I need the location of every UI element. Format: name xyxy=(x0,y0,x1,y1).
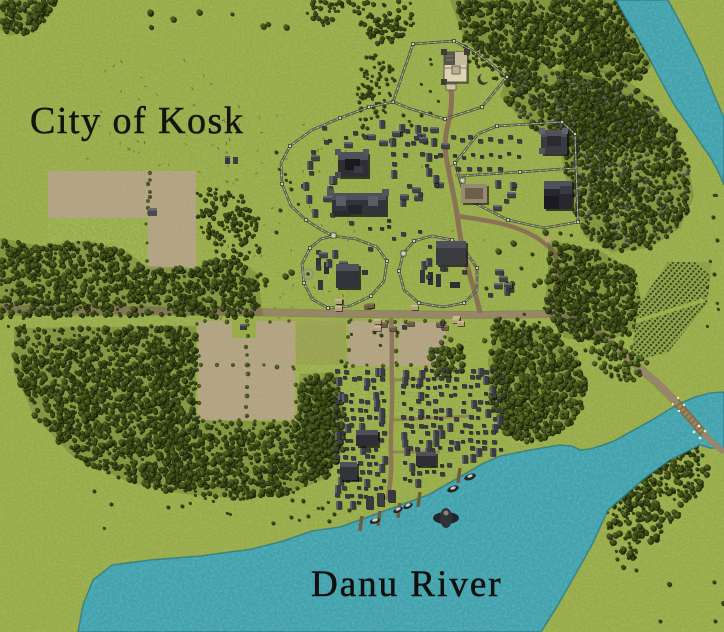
svg-text:City of Kosk: City of Kosk xyxy=(30,100,244,142)
svg-text:Danu River: Danu River xyxy=(311,564,503,605)
